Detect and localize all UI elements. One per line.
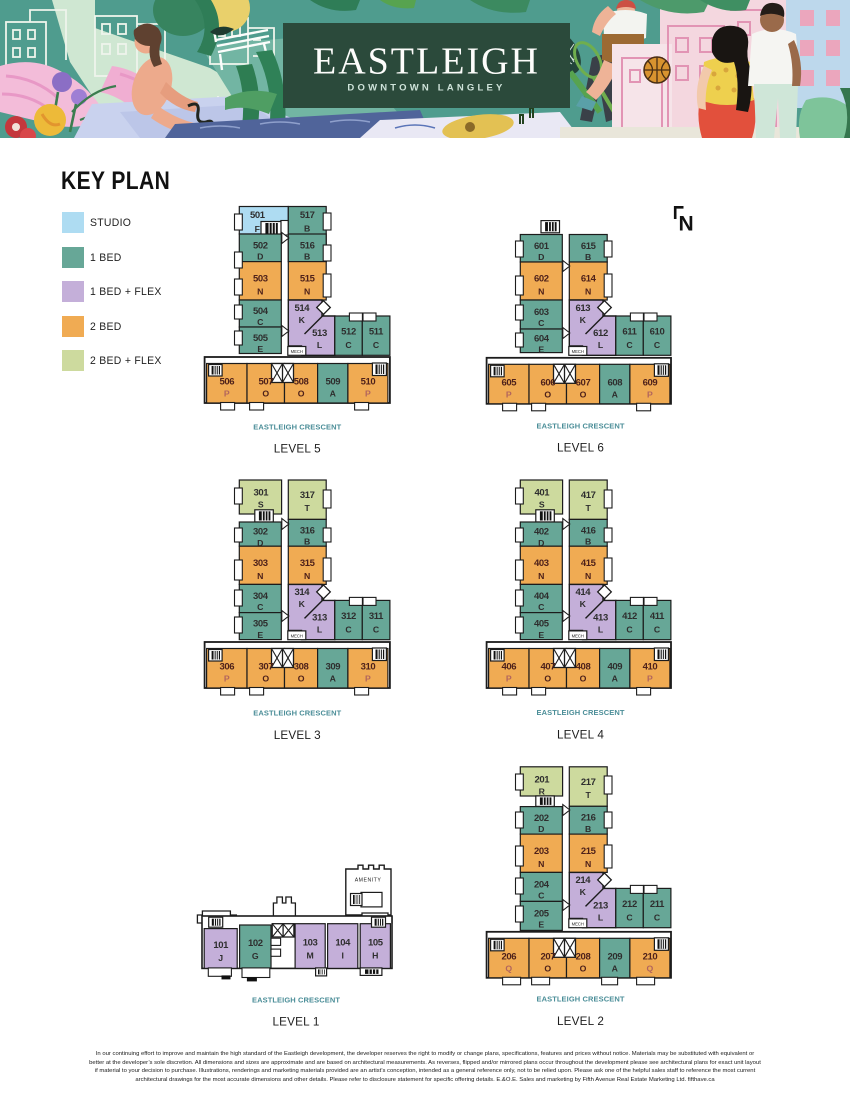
svg-text:C: C [538,318,545,328]
svg-text:310: 310 [361,662,376,673]
svg-text:N: N [585,859,591,869]
svg-text:415: 415 [581,558,597,569]
svg-text:B: B [585,824,591,834]
svg-text:EASTLEIGH CRESCENT: EASTLEIGH CRESCENT [536,422,624,431]
svg-text:314: 314 [294,587,310,598]
svg-text:317: 317 [300,490,315,501]
svg-text:413: 413 [593,612,608,623]
svg-text:O: O [544,674,551,684]
svg-text:L: L [598,912,604,922]
svg-text:206: 206 [501,951,516,962]
svg-text:E: E [538,345,544,355]
svg-text:K: K [299,315,306,325]
svg-text:O: O [262,674,269,684]
svg-text:509: 509 [325,377,340,388]
svg-text:416: 416 [581,525,596,536]
svg-text:506: 506 [219,377,234,388]
svg-text:B: B [304,537,310,547]
svg-text:Q: Q [505,963,512,973]
svg-text:313: 313 [312,612,327,623]
svg-text:C: C [345,340,352,350]
svg-text:B: B [585,252,591,262]
svg-text:MECH: MECH [572,349,584,354]
svg-text:P: P [506,389,512,399]
svg-text:N: N [585,571,591,581]
svg-text:E: E [538,630,544,640]
svg-text:EASTLEIGH CRESCENT: EASTLEIGH CRESCENT [253,422,341,431]
svg-text:604: 604 [534,333,550,344]
svg-text:B: B [304,252,310,262]
svg-text:F: F [255,224,260,234]
svg-text:MECH: MECH [291,633,303,638]
svg-text:J: J [218,953,223,963]
svg-text:N: N [538,287,544,297]
svg-text:T: T [305,503,311,513]
svg-text:211: 211 [650,899,665,910]
svg-text:309: 309 [325,662,340,673]
svg-text:511: 511 [369,327,384,338]
svg-text:610: 610 [650,327,665,338]
svg-text:605: 605 [501,377,517,388]
svg-text:EASTLEIGH CRESCENT: EASTLEIGH CRESCENT [252,995,340,1004]
svg-text:P: P [506,674,512,684]
svg-text:D: D [538,252,544,262]
svg-text:C: C [626,340,633,350]
svg-text:L: L [317,624,323,634]
svg-text:T: T [586,790,592,800]
svg-text:P: P [647,389,653,399]
svg-text:407: 407 [540,662,555,673]
svg-text:C: C [626,624,633,634]
svg-text:505: 505 [253,333,269,344]
svg-text:C: C [257,317,264,327]
svg-text:O: O [580,674,587,684]
svg-text:305: 305 [253,619,269,630]
svg-text:204: 204 [534,879,550,890]
svg-text:608: 608 [607,377,622,388]
svg-text:N: N [538,859,544,869]
svg-text:513: 513 [312,328,327,339]
svg-text:207: 207 [540,951,555,962]
svg-text:B: B [585,537,591,547]
svg-text:613: 613 [575,303,590,314]
svg-text:A: A [612,963,619,973]
svg-text:214: 214 [575,875,591,886]
svg-text:514: 514 [294,303,310,314]
svg-text:101: 101 [213,940,229,951]
svg-text:S: S [258,500,264,510]
svg-text:C: C [654,624,661,634]
svg-text:501: 501 [250,210,266,221]
svg-text:516: 516 [300,240,315,251]
svg-text:Q: Q [647,963,654,973]
svg-text:EASTLEIGH CRESCENT: EASTLEIGH CRESCENT [536,994,624,1003]
svg-text:502: 502 [253,240,268,251]
svg-text:203: 203 [534,846,549,857]
svg-text:N: N [585,287,591,297]
svg-text:307: 307 [258,662,273,673]
svg-text:602: 602 [534,274,549,285]
svg-text:M: M [306,951,313,961]
svg-text:LEVEL 4: LEVEL 4 [557,728,604,741]
svg-text:A: A [330,674,337,684]
svg-text:O: O [580,389,587,399]
svg-text:C: C [345,624,352,634]
svg-text:C: C [654,340,661,350]
svg-text:C: C [626,912,633,922]
svg-text:D: D [538,824,544,834]
svg-text:C: C [654,912,661,922]
svg-text:503: 503 [253,273,268,284]
svg-text:A: A [612,389,619,399]
svg-text:O: O [544,963,551,973]
svg-text:N: N [304,571,310,581]
svg-text:217: 217 [581,777,596,788]
svg-text:L: L [598,340,604,350]
svg-text:210: 210 [643,951,658,962]
svg-text:215: 215 [581,846,597,857]
svg-text:P: P [365,674,371,684]
svg-text:O: O [298,389,305,399]
svg-text:L: L [598,624,604,634]
svg-text:C: C [257,602,264,612]
svg-text:E: E [257,344,263,354]
svg-text:417: 417 [581,490,596,501]
svg-text:603: 603 [534,307,549,318]
svg-text:512: 512 [341,327,356,338]
svg-text:C: C [373,624,380,634]
svg-text:216: 216 [581,813,596,824]
svg-text:102: 102 [248,938,263,949]
svg-text:414: 414 [575,587,591,598]
svg-text:411: 411 [650,611,665,622]
svg-text:P: P [365,389,371,399]
svg-text:316: 316 [300,525,315,536]
svg-text:404: 404 [534,591,550,602]
svg-text:315: 315 [300,558,316,569]
svg-text:517: 517 [300,210,315,221]
svg-text:DOWNTOWN LANGLEY: DOWNTOWN LANGLEY [347,83,505,94]
svg-text:202: 202 [534,813,549,824]
svg-text:O: O [298,674,305,684]
svg-text:LEVEL 2: LEVEL 2 [557,1015,604,1028]
svg-text:P: P [224,389,230,399]
svg-text:208: 208 [576,951,591,962]
svg-text:MECH: MECH [572,921,584,926]
svg-text:D: D [538,538,544,548]
svg-text:607: 607 [576,377,591,388]
svg-text:I: I [341,951,343,961]
svg-text:510: 510 [361,377,376,388]
svg-text:301: 301 [253,488,269,499]
svg-text:303: 303 [253,558,268,569]
svg-text:614: 614 [581,274,597,285]
svg-text:N: N [257,287,263,297]
svg-text:103: 103 [303,938,318,949]
svg-text:S: S [539,500,545,510]
svg-text:G: G [252,951,259,961]
svg-text:K: K [580,315,587,325]
svg-text:A: A [612,674,619,684]
svg-text:412: 412 [622,611,637,622]
svg-text:LEVEL 6: LEVEL 6 [557,442,604,455]
svg-text:EASTLEIGH: EASTLEIGH [313,41,540,83]
svg-text:R: R [539,786,546,796]
svg-text:515: 515 [300,273,316,284]
svg-text:201: 201 [534,774,550,785]
svg-text:311: 311 [369,611,384,622]
svg-text:306: 306 [219,662,234,673]
svg-text:E: E [538,920,544,930]
svg-text:MECH: MECH [291,349,303,354]
svg-text:N: N [257,571,263,581]
svg-text:LEVEL 1: LEVEL 1 [272,1016,319,1029]
svg-text:409: 409 [607,662,622,673]
svg-text:T: T [586,503,592,513]
svg-text:410: 410 [643,662,658,673]
svg-text:C: C [538,891,545,901]
svg-text:403: 403 [534,558,549,569]
svg-text:O: O [580,963,587,973]
svg-text:104: 104 [335,938,351,949]
svg-text:612: 612 [593,328,608,339]
svg-text:P: P [224,674,230,684]
svg-text:209: 209 [607,951,622,962]
svg-text:401: 401 [534,488,550,499]
svg-text:601: 601 [534,241,550,252]
svg-text:C: C [373,340,380,350]
svg-text:507: 507 [258,377,273,388]
svg-text:205: 205 [534,908,550,919]
svg-text:K: K [580,887,587,897]
svg-text:P: P [647,674,653,684]
svg-text:B: B [304,224,310,234]
svg-text:D: D [257,538,263,548]
svg-text:N: N [304,287,310,297]
svg-text:E: E [257,630,263,640]
svg-text:508: 508 [294,377,309,388]
svg-text:615: 615 [581,241,597,252]
svg-text:O: O [544,389,551,399]
svg-text:MECH: MECH [572,633,584,638]
svg-text:N: N [679,213,694,236]
svg-text:213: 213 [593,900,608,911]
svg-text:611: 611 [622,327,637,338]
svg-text:EASTLEIGH CRESCENT: EASTLEIGH CRESCENT [536,708,624,717]
svg-text:C: C [538,602,545,612]
svg-text:408: 408 [576,662,591,673]
svg-text:304: 304 [253,591,269,602]
svg-text:N: N [538,571,544,581]
svg-text:AMENITY: AMENITY [355,878,382,884]
svg-text:D: D [257,252,263,262]
svg-text:212: 212 [622,899,637,910]
svg-text:L: L [317,340,323,350]
svg-text:H: H [372,951,378,961]
svg-text:LEVEL 3: LEVEL 3 [274,729,321,742]
svg-text:K: K [580,599,587,609]
svg-text:312: 312 [341,611,356,622]
svg-text:K: K [299,599,306,609]
svg-text:302: 302 [253,527,268,538]
svg-text:402: 402 [534,527,549,538]
svg-text:EASTLEIGH CRESCENT: EASTLEIGH CRESCENT [253,709,341,718]
svg-text:308: 308 [294,662,309,673]
svg-text:504: 504 [253,306,269,317]
svg-text:406: 406 [501,662,516,673]
svg-text:606: 606 [540,377,555,388]
svg-text:405: 405 [534,619,550,630]
svg-text:609: 609 [643,377,658,388]
svg-text:LEVEL 5: LEVEL 5 [274,443,321,456]
svg-text:O: O [262,389,269,399]
svg-text:105: 105 [368,938,384,949]
svg-text:A: A [330,389,337,399]
